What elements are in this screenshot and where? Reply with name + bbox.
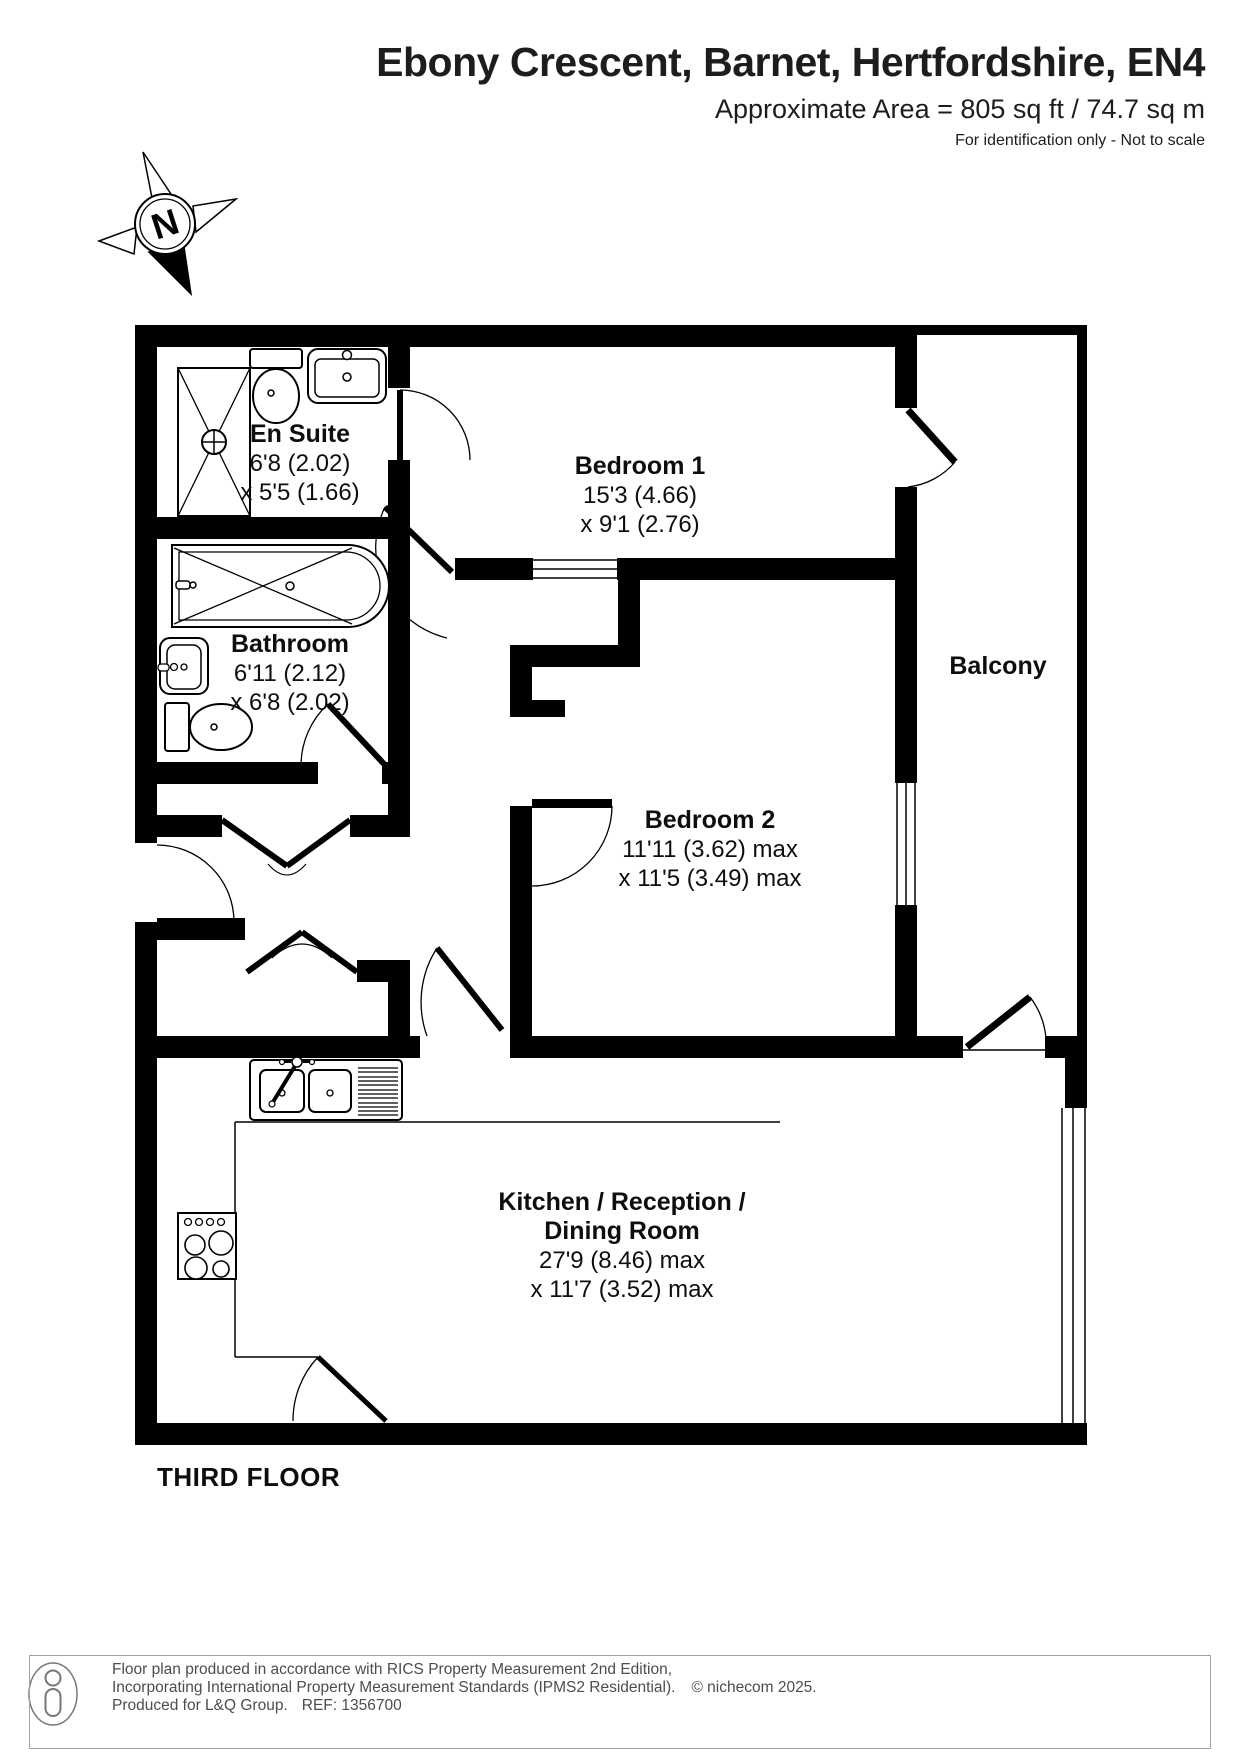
page-title: Ebony Crescent, Barnet, Hertfordshire, E… — [376, 40, 1205, 84]
footer-produced-for: Produced for L&Q Group. — [112, 1697, 288, 1714]
shower-icon — [178, 368, 250, 516]
room-label-kitchen-reception-dining: Kitchen / Reception / Dining Room 27'9 (… — [498, 1188, 745, 1304]
room-name: En Suite — [240, 420, 359, 449]
room-dim1: 15'3 (4.66) — [575, 481, 706, 510]
compass-icon: N — [99, 152, 236, 294]
room-name-line1: Kitchen / Reception / — [498, 1188, 745, 1217]
footer-standards: Incorporating International Property Mea… — [112, 1679, 675, 1696]
room-name-line2: Dining Room — [498, 1217, 745, 1246]
footer-ref: REF: 1356700 — [302, 1697, 402, 1715]
room-dim1: 6'8 (2.02) — [240, 449, 359, 478]
room-name: Bedroom 1 — [575, 452, 706, 481]
room-name: Balcony — [949, 652, 1046, 681]
room-dim2: x 11'5 (3.49) max — [619, 864, 802, 893]
disclaimer: For identification only - Not to scale — [376, 132, 1205, 150]
room-dim2: x 6'8 (2.02) — [230, 688, 349, 717]
room-label-en-suite: En Suite 6'8 (2.02) x 5'5 (1.66) — [240, 420, 359, 507]
footer-copyright: © nichecom 2025. — [691, 1679, 816, 1697]
bathtub-icon — [172, 545, 389, 627]
footer-line-1: Floor plan produced in accordance with R… — [112, 1661, 817, 1679]
ensuite-sink-icon — [308, 349, 386, 403]
footer-line-2: Incorporating International Property Mea… — [112, 1679, 817, 1697]
room-dim2: x 5'5 (1.66) — [240, 478, 359, 507]
room-dim2: x 9'1 (2.76) — [575, 510, 706, 539]
room-name: Bedroom 2 — [619, 806, 802, 835]
hob-icon — [178, 1213, 236, 1279]
room-label-bedroom-2: Bedroom 2 11'11 (3.62) max x 11'5 (3.49)… — [619, 806, 802, 893]
room-name: Bathroom — [230, 630, 349, 659]
ensuite-toilet-icon — [250, 349, 302, 423]
footer-line-3: Produced for L&Q Group.REF: 1356700 — [112, 1697, 817, 1715]
room-dim1: 27'9 (8.46) max — [498, 1246, 745, 1275]
room-dim1: 11'11 (3.62) max — [619, 835, 802, 864]
room-dim1: 6'11 (2.12) — [230, 659, 349, 688]
floor-label: THIRD FLOOR — [157, 1462, 340, 1493]
bathroom-sink-icon — [158, 638, 208, 694]
kitchen-sink-icon — [250, 1057, 402, 1120]
approximate-area: Approximate Area = 805 sq ft / 74.7 sq m — [376, 94, 1205, 124]
room-dim2: x 11'7 (3.52) max — [498, 1275, 745, 1304]
header: Ebony Crescent, Barnet, Hertfordshire, E… — [376, 40, 1205, 150]
floorplan-page: N Ebony Crescent, Barnet, Hertfordshire,… — [0, 0, 1241, 1755]
room-label-bathroom: Bathroom 6'11 (2.12) x 6'8 (2.02) — [230, 630, 349, 717]
footer-text: Floor plan produced in accordance with R… — [112, 1661, 817, 1715]
room-label-balcony: Balcony — [949, 652, 1046, 681]
room-label-bedroom-1: Bedroom 1 15'3 (4.66) x 9'1 (2.76) — [575, 452, 706, 539]
